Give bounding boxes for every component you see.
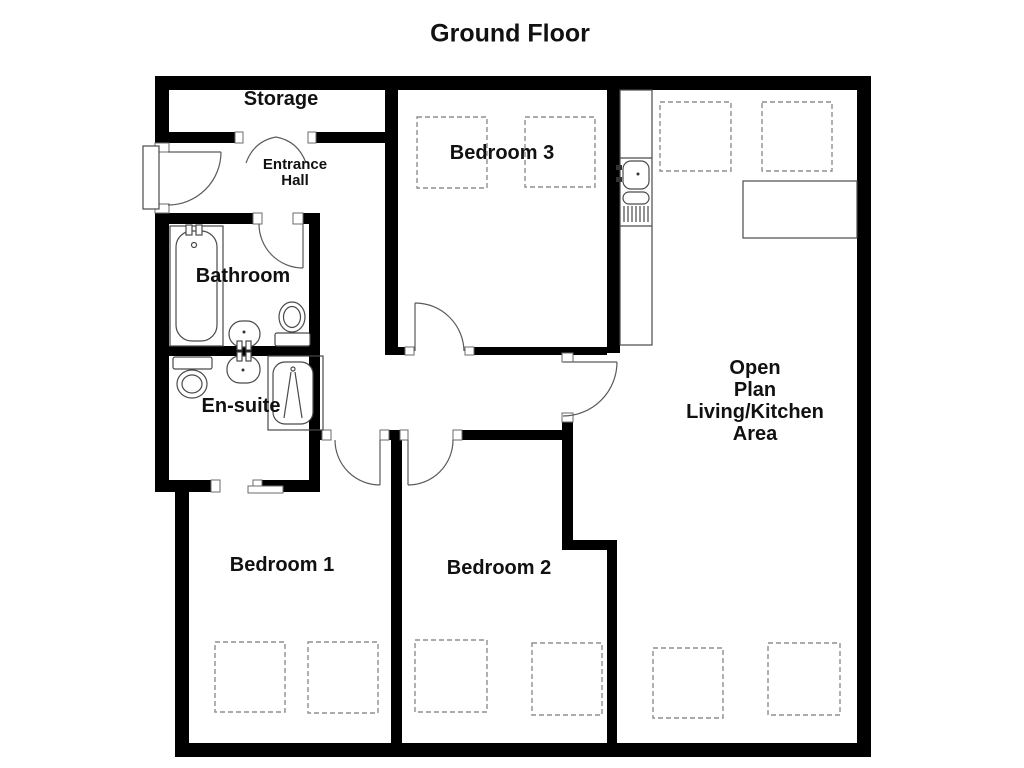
wall-bedroom1-bedroom2-divider [391,440,402,743]
bathroom-door-swing-arc [259,224,303,268]
kitchen-tap-2 [616,177,622,182]
jamb-bedroom2-left [400,430,408,440]
wall-ensuite-bottom-left [155,480,211,492]
room-label-bedroom2: Bedroom 2 [447,558,551,580]
bathroom-basin-drain [243,331,246,334]
kitchen-sink-icon [623,161,649,189]
wall-hall-bottom-3 [462,430,563,440]
ensuite-basin-tap-2 [246,352,251,361]
ensuite-basin-tap-1 [237,352,242,361]
wall-bedroom3-bottom-left [385,347,405,355]
bedroom1-door-swing-arc [335,440,380,485]
room-label-ensuite: En-suite [202,396,281,418]
placeholder-openplan-bottom-2 [768,643,840,715]
floor-plan-drawing [0,0,1024,768]
floor-plan: Ground Floor Storage Entrance Hall Bathr… [0,0,1024,768]
bathtub-tap-right [196,225,202,235]
jamb-storage-left [235,132,243,143]
bathroom-basin-icon [229,321,260,347]
wall-outer-right [857,76,871,757]
room-label-storage: Storage [244,89,318,111]
openplan-door-swing-arc [563,362,617,416]
jamb-openplan-top [562,353,573,362]
wall-bedroom3-left [385,143,398,353]
placeholder-bedroom1-2 [308,642,378,713]
bathroom-toilet-cistern [275,333,310,346]
wall-storage-right [316,132,390,143]
wall-outer-left-upper-a [155,76,169,152]
placeholder-openplan-top-1 [660,102,731,171]
wall-outer-left-upper-b [155,204,169,492]
room-label-open-plan: Open Plan Living/Kitchen Area [686,357,824,445]
room-label-bathroom: Bathroom [196,266,290,288]
page-title: Ground Floor [430,21,590,48]
ensuite-toilet-cistern [173,357,212,369]
bathtub-tap-left [186,225,192,235]
jamb-bedroom3-left [405,347,414,355]
kitchen-tap-1 [616,165,622,170]
wall-bedroom3-bottom-right [474,347,607,355]
ensuite-fixtures [173,352,323,430]
front-door-swing-arc [168,152,221,205]
bedroom2-door-swing-arc [408,440,453,485]
room-label-bedroom1: Bedroom 1 [230,555,334,577]
wall-bathroom-top-left [169,213,253,224]
front-door-frame [143,146,159,209]
placeholder-bedroom2-1 [415,640,487,712]
jamb-bedroom1-right [380,430,389,440]
bathroom-basin-tap-1 [237,341,242,350]
placeholder-bedroom2-2 [532,643,602,715]
placeholder-openplan-bottom-1 [653,648,723,718]
wall-bedroom2-east [607,550,617,743]
wall-hall-bottom-1 [309,430,322,440]
jamb-bathroom-left [253,213,262,224]
wall-storage-left [169,132,235,143]
wall-bedroom3-right [607,88,620,353]
ensuite-threshold-step [248,486,283,493]
ensuite-basin-drain [242,369,245,372]
jamb-bathroom-right [293,213,303,224]
jamb-bedroom2-right [453,430,462,440]
dining-table [743,181,857,238]
jamb-openplan-bottom [562,413,573,422]
bathroom-basin-tap-2 [246,341,251,350]
bedroom3-door-swing-arc [415,303,464,351]
wall-outer-left-lower [175,480,189,757]
wall-openplan-west [562,422,573,540]
kitchen-drainer-icon [624,206,648,222]
wall-openplan-step [562,540,617,550]
jamb-bedroom1-left [322,430,331,440]
room-label-entrance-hall: Entrance Hall [263,157,327,189]
placeholder-bedroom1-1 [215,642,285,712]
kitchen-fixtures [616,90,857,345]
room-label-bedroom3: Bedroom 3 [450,143,554,165]
kitchen-sink-drain [637,173,640,176]
wall-hall-bottom-2 [389,430,400,440]
placeholder-openplan-top-2 [762,102,832,171]
kitchen-sink-bowl-2 [623,192,649,204]
wall-storage-bedroom3-divider [385,90,398,143]
jamb-bedroom3-right [465,347,474,355]
jamb-ensuite-left [211,480,220,492]
jamb-storage-right [308,132,316,143]
wall-outer-bottom [175,743,871,757]
